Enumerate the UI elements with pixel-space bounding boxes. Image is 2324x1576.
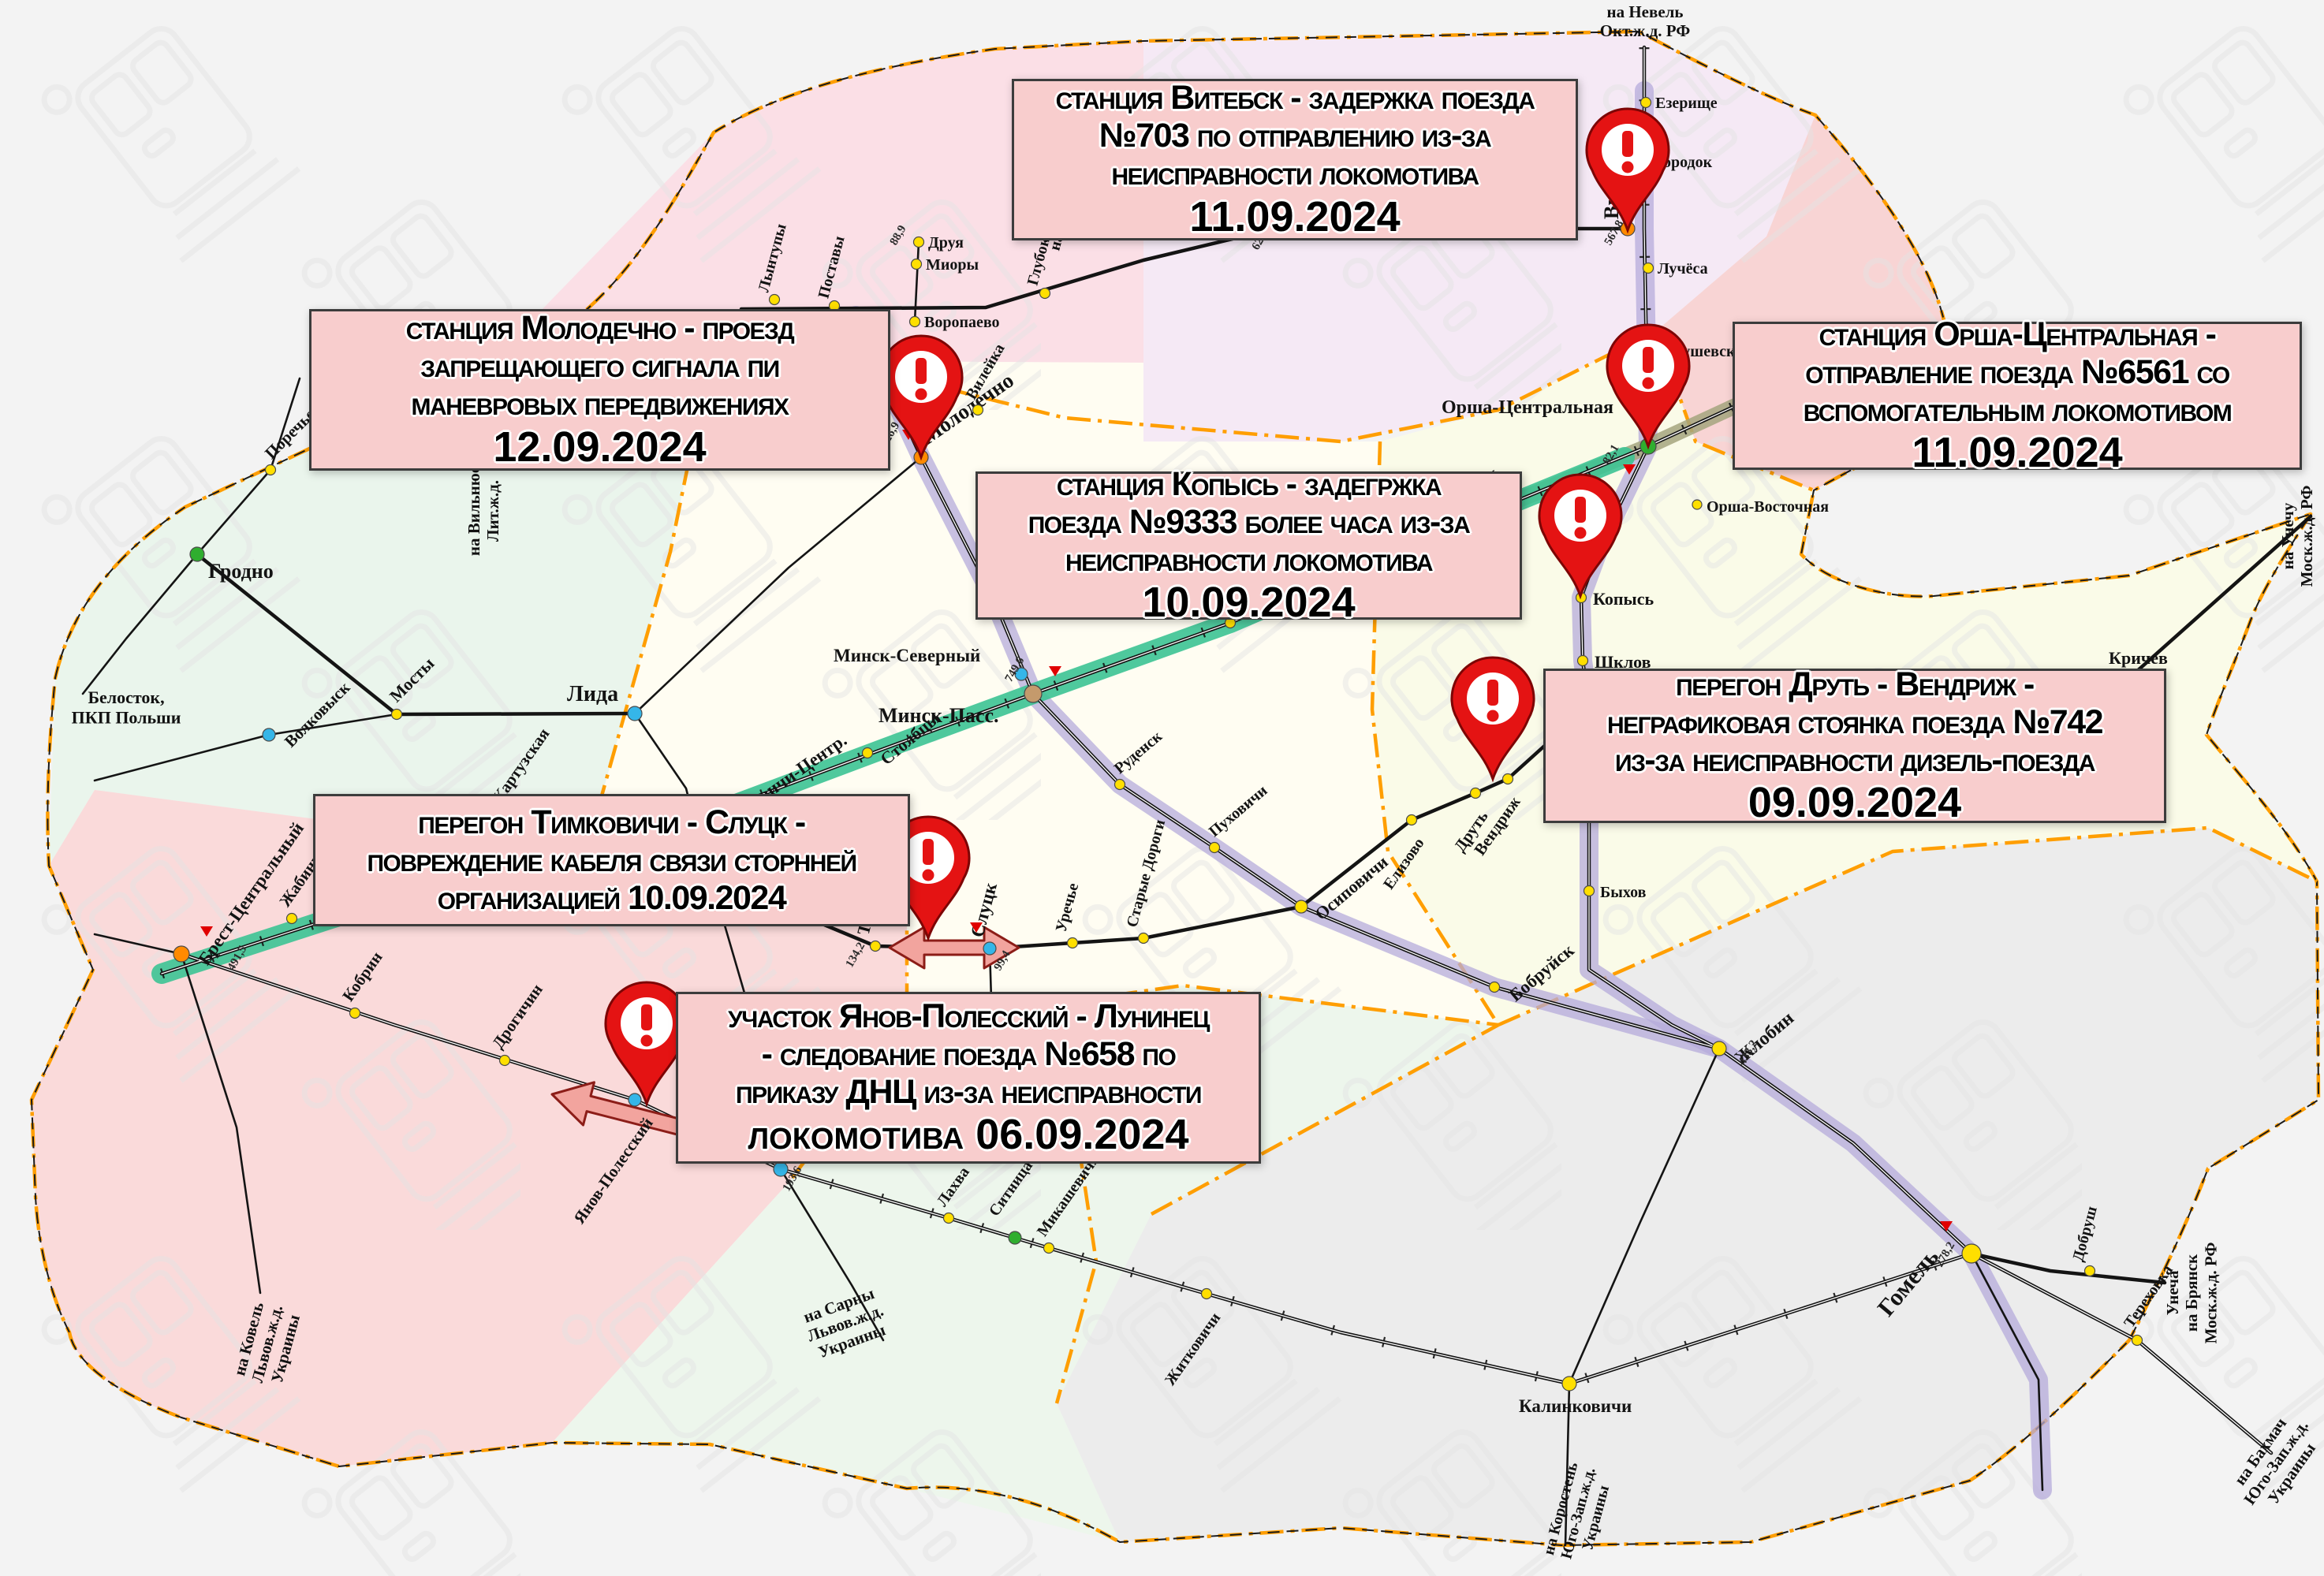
- callout-date: локомотива 06.09.2024: [748, 1111, 1189, 1158]
- station-label: Лучёса: [1658, 260, 1708, 278]
- external-link-line: Белосток,: [88, 687, 164, 707]
- station-dot: [1962, 1244, 1981, 1263]
- station-dot: [1044, 1243, 1054, 1254]
- station-dot: [1202, 1289, 1212, 1299]
- railway-incident-map: ГродноПоречьеМостыВолковыскЛидаЛынтупыПо…: [0, 0, 2324, 1576]
- external-link-line: Лит.ж.д.: [483, 480, 502, 542]
- station-dot: [770, 295, 780, 305]
- station-label: Минск-Северный: [834, 646, 980, 665]
- callout-text-line: неграфиковая стоянка поезда №742: [1607, 703, 2102, 741]
- station-dot: [1068, 938, 1078, 948]
- station-dot: [973, 405, 983, 415]
- station-dot: [1562, 1377, 1576, 1391]
- station-label: Воропаево: [924, 314, 1000, 331]
- callout-orsha: станция Орша-Центральная - отправление п…: [1733, 322, 2302, 470]
- station-dot: [1503, 774, 1513, 784]
- callout-yanov-luninets: участок Янов-Полесский - Лунинец - следо…: [676, 992, 1261, 1164]
- callout-date: 10.09.2024: [1142, 579, 1355, 626]
- station-dot: [912, 259, 922, 270]
- station-label: Лида: [567, 682, 618, 706]
- callout-text-line: отправление поезда №6561 со: [1805, 353, 2229, 391]
- station-dot: [1115, 780, 1125, 790]
- callout-text-line: №703 по отправлению из-за: [1099, 117, 1490, 155]
- station-dot: [1139, 933, 1149, 944]
- callout-text-line: организацией 10.09.2024: [438, 879, 786, 917]
- callout-text-line: маневровых передвижениях: [411, 385, 788, 423]
- callout-date: 09.09.2024: [1748, 779, 1961, 826]
- station-dot: [628, 706, 642, 721]
- station-dot: [2085, 1266, 2095, 1276]
- station-label: Кричев: [2109, 648, 2168, 668]
- callout-text-line: неисправности локомотива: [1112, 155, 1479, 192]
- external-link-line: Унеча: [2163, 1270, 2182, 1315]
- station-label: Езерище: [1655, 95, 1718, 112]
- station-label: Гродно: [208, 560, 274, 583]
- external-link-line: Моск.ж.д. РФ: [2201, 1243, 2220, 1344]
- external-link-line: на Брянск: [2182, 1254, 2201, 1332]
- callout-drut-vendrizh: перегон Друть - Вендриж - неграфиковая с…: [1543, 669, 2166, 823]
- station-dot: [871, 941, 881, 952]
- station-label: Друя: [928, 234, 964, 251]
- station-label: Калинковичи: [1519, 1396, 1632, 1416]
- external-link-line: Моск.ж.д. РФ: [2297, 486, 2316, 587]
- callout-text-line: запрещающего сигнала пи: [420, 347, 779, 385]
- station-label: Копысь: [1593, 589, 1654, 609]
- station-label: Орша-Центральная: [1442, 397, 1613, 418]
- callout-text-line: неисправности локомотива: [1065, 541, 1432, 579]
- callout-kopys: станция Копысь - задегржка поезда №9333 …: [975, 471, 1522, 620]
- station-dot: [190, 547, 204, 561]
- station-dot: [1643, 263, 1654, 274]
- callout-molodechno: станция Молодечно - проезд запрещающего …: [309, 309, 890, 471]
- callout-text-line: повреждение кабеля связи сторнней: [367, 841, 856, 879]
- callout-text-line: перегон Друть - Вендриж -: [1676, 665, 2034, 703]
- callout-text-line: поезда №9333 более часа из-за: [1028, 503, 1470, 541]
- station-dot: [1641, 98, 1651, 108]
- station-dot: [944, 1213, 954, 1224]
- callout-text-line: приказу ДНЦ из-за неисправности: [736, 1073, 1201, 1111]
- external-link-line: на Унечу: [2278, 502, 2297, 569]
- external-link-line: Окт.ж.д. РФ: [1600, 21, 1691, 40]
- station-dot: [1407, 815, 1417, 825]
- station-dot: [173, 946, 189, 962]
- callout-date: 11.09.2024: [1189, 193, 1400, 240]
- station-dot: [1471, 788, 1481, 799]
- station-dot: [983, 942, 996, 955]
- callout-text-line: - следование поезда №658 по: [762, 1035, 1176, 1073]
- station-dot: [500, 1056, 510, 1066]
- station-dot: [266, 465, 276, 475]
- station-dot: [263, 728, 275, 741]
- callout-text-line: станция Орша-Центральная -: [1819, 315, 2216, 353]
- station-dot: [1584, 886, 1595, 896]
- station-dot: [2132, 1336, 2143, 1346]
- callout-text-line: станция Копысь - задегржка: [1057, 465, 1441, 503]
- external-link-line: на Невель: [1606, 2, 1683, 21]
- station-dot: [774, 1162, 788, 1176]
- station-dot: [910, 317, 920, 327]
- station-dot: [863, 748, 873, 758]
- station-dot: [1712, 1041, 1726, 1056]
- station-dot: [1040, 289, 1050, 299]
- station: Орша-Восточная: [1692, 498, 1829, 516]
- station-label: Орша-Восточная: [1707, 498, 1829, 516]
- callout-text-line: вспомогательным локомотивом: [1804, 391, 2232, 429]
- station-dot: [1024, 685, 1042, 702]
- station-label: Миоры: [926, 256, 979, 274]
- station-dot: [1009, 1231, 1021, 1244]
- callout-vitebsk: станция Витебск - задержка поезда №703 п…: [1012, 79, 1578, 240]
- callout-text-line: станция Витебск - задержка поезда: [1056, 79, 1535, 117]
- station-dot: [392, 710, 402, 720]
- station-dot: [1692, 500, 1702, 509]
- callout-text-line: из-за неисправности дизель-поезда: [1615, 741, 2095, 779]
- station-dot: [287, 914, 297, 924]
- station-dot: [1490, 982, 1500, 993]
- station-dot: [1578, 656, 1588, 666]
- callout-text-line: станция Молодечно - проезд: [406, 309, 793, 347]
- callout-date: 12.09.2024: [493, 423, 706, 471]
- callout-text-line: перегон Тимковичи - Слуцк -: [418, 803, 804, 841]
- station-dot: [350, 1008, 360, 1019]
- callout-date: 11.09.2024: [1912, 429, 2122, 476]
- callout-timkovichi-slutsk: перегон Тимковичи - Слуцк - повреждение …: [313, 794, 910, 926]
- external-link-line: на Вильнюс: [464, 466, 483, 556]
- station-dot: [1295, 900, 1307, 913]
- station-dot: [1210, 843, 1220, 853]
- external-link-label: на НевельОкт.ж.д. РФ: [1600, 2, 1691, 40]
- external-link-line: ПКП Польши: [72, 707, 181, 727]
- callout-text-line: участок Янов-Полесский - Лунинец: [728, 997, 1209, 1035]
- station-label: Быхов: [1600, 884, 1647, 901]
- station-dot: [914, 237, 924, 248]
- station-dot: [629, 1094, 641, 1106]
